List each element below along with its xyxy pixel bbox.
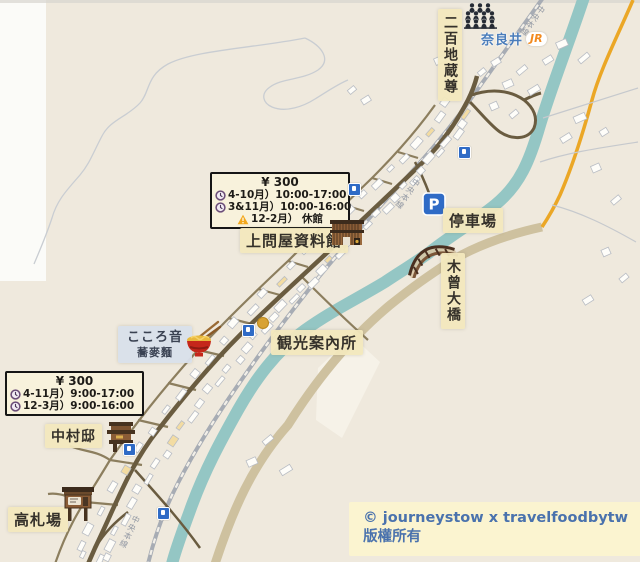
hours-text: 3&11月）10:00-16:00 — [228, 201, 351, 213]
label-nakamura: 中村邸 — [45, 424, 102, 448]
kokorone-sub: 蕎麥麵 — [127, 346, 183, 359]
label-kiso-bridge: 木曾大橋 — [441, 253, 465, 329]
price: ¥ 300 — [215, 176, 345, 189]
small-blue-marker-icon — [458, 146, 471, 159]
hours-text: 4-10月）10:00-17:00 — [228, 189, 346, 201]
small-blue-marker-icon — [157, 507, 170, 520]
clock-icon — [215, 202, 226, 213]
hours-text: 4-11月）9:00-17:00 — [23, 388, 134, 400]
clock-icon — [10, 389, 21, 400]
station-label: 奈良井 JR — [481, 29, 547, 48]
label-tourist-info: 観光案內所 — [271, 330, 363, 355]
soba-bowl-icon — [184, 316, 222, 358]
poi-dot — [257, 317, 269, 329]
clock-icon — [215, 190, 226, 201]
closed-text: 12-2月） 休館 — [251, 213, 323, 225]
notice-board-icon — [62, 485, 94, 525]
info-box-nakamura: ¥ 300 4-11月）9:00-17:00 12-3月）9:00-16:00 — [5, 371, 144, 416]
small-blue-marker-icon — [348, 183, 361, 196]
map-edge-blank — [0, 0, 46, 281]
museum-building-icon — [329, 218, 365, 248]
small-blue-marker-icon — [242, 324, 255, 337]
narai-juku-map: 二百地蔵尊 奈良井 JR 中央本線 中央本線 中央本線 ¥ 300 4-10月）… — [0, 0, 640, 562]
map-canvas — [0, 0, 640, 562]
copyright-notice: © journeystow x travelfoodbytw 版權所有 — [349, 502, 640, 556]
label-kokorone: こころ音 蕎麥麵 — [118, 326, 192, 363]
kokorone-name: こころ音 — [127, 330, 183, 346]
price: ¥ 300 — [10, 375, 139, 388]
label-jizo: 二百地蔵尊 — [438, 9, 462, 101]
small-blue-marker-icon — [123, 443, 136, 456]
jizo-statues-icon — [460, 2, 500, 29]
copyright-line1: © journeystow x travelfoodbytw — [363, 509, 628, 529]
hours-text: 12-3月）9:00-16:00 — [23, 400, 134, 412]
warning-icon — [237, 214, 249, 225]
clock-icon — [10, 401, 21, 412]
label-kosatsuba: 高札場 — [8, 507, 68, 532]
copyright-line2: 版權所有 — [363, 528, 628, 548]
parking-letter: P — [429, 196, 440, 214]
